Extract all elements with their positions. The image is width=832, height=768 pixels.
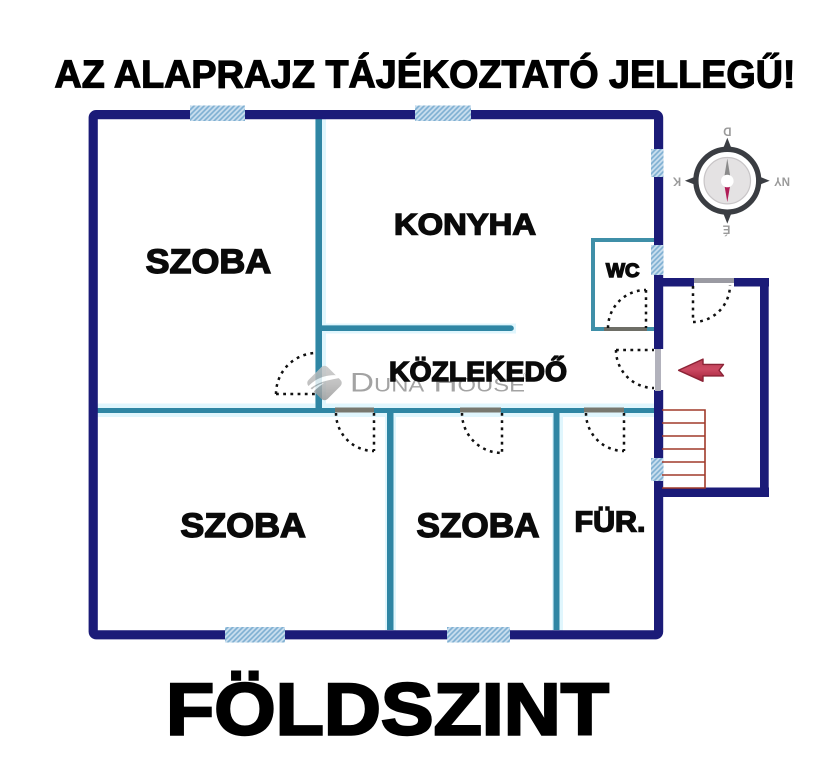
svg-text:É: É	[722, 223, 730, 236]
svg-text:SZOBA: SZOBA	[180, 507, 306, 545]
svg-text:AZ ALAPRAJZ TÁJÉKOZTATÓ JELLEG: AZ ALAPRAJZ TÁJÉKOZTATÓ JELLEGŰ!	[55, 52, 796, 96]
svg-text:FÖLDSZINT: FÖLDSZINT	[166, 670, 609, 751]
svg-text:NY: NY	[774, 175, 790, 187]
svg-text:SZOBA: SZOBA	[417, 507, 540, 545]
svg-text:KÖZLEKEDŐ: KÖZLEKEDŐ	[389, 356, 567, 387]
svg-text:FÜR.: FÜR.	[575, 506, 646, 539]
svg-text:WC: WC	[606, 260, 640, 282]
svg-text:K: K	[672, 175, 681, 187]
svg-text:SZOBA: SZOBA	[146, 243, 272, 281]
svg-text:D: D	[723, 125, 731, 137]
svg-text:KONYHA: KONYHA	[394, 208, 536, 241]
